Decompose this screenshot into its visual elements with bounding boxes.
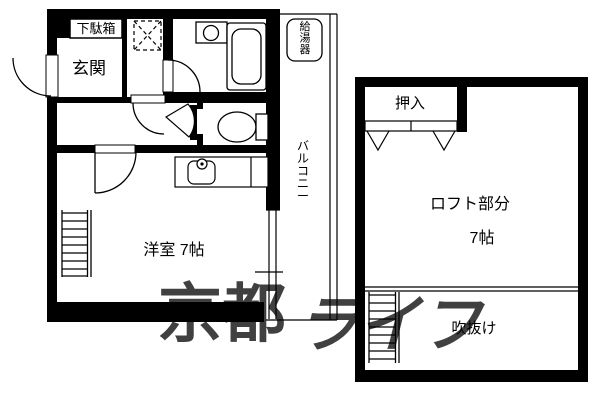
watermark-text-2: ライフ [293, 291, 496, 360]
wall-segment [47, 9, 280, 19]
floor-plan-canvas: 下駄箱 玄関 [0, 0, 600, 400]
wall-segment [47, 97, 131, 103]
wall-segment [578, 87, 588, 382]
loft-size-label: 7帖 [470, 229, 495, 247]
toilet-tank [256, 114, 268, 140]
closet-door-swing-marks [367, 131, 455, 150]
hallway-opening [131, 95, 165, 103]
washing-machine-box [134, 21, 161, 50]
loft-area-label: ロフト部分 [430, 195, 510, 213]
bath-door-leaf [163, 60, 173, 92]
wall-segment [197, 103, 203, 109]
wall-segment [355, 77, 588, 87]
water-heater-label: 給湯器 [300, 19, 311, 56]
balcony-label: バルコニー [297, 139, 309, 203]
entrance-door-leaf [46, 55, 58, 97]
loft-ladder-icon [62, 210, 91, 277]
washing-machine-cross [134, 21, 161, 50]
entrance-door-arc [13, 58, 51, 96]
closet-label: 押入 [395, 95, 425, 112]
kitchen-faucet-dot [201, 163, 203, 165]
wall-segment [135, 145, 280, 153]
main-room-label: 洋室 7帖 [143, 241, 204, 259]
floor-plan-page: 下駄箱 玄関 [0, 0, 600, 400]
wall-segment [57, 19, 70, 38]
room-door-opening [95, 145, 135, 153]
wall-segment [197, 134, 203, 145]
wall-segment [355, 370, 588, 382]
watermark-text-1: 京都 [158, 278, 286, 350]
watermark: 京都 ライフ [158, 278, 496, 360]
room-door-arc [95, 152, 136, 193]
wash-basin-icon [204, 26, 219, 41]
shoe-cabinet-label: 下駄箱 [76, 21, 115, 36]
wall-segment [47, 19, 57, 55]
wall-segment [47, 97, 57, 322]
wall-segment [457, 87, 467, 132]
wall-segment [163, 19, 173, 60]
closet-door-mark [433, 131, 455, 150]
washing-machine-space-icon [134, 21, 161, 50]
toilet-room [218, 112, 268, 142]
wall-segment [163, 92, 280, 103]
hallway-door-arc [133, 103, 164, 134]
washing-machine-cross [134, 21, 161, 50]
kitchen-counter [175, 157, 268, 187]
bathtub-inner [232, 29, 261, 84]
closet-door-mark [367, 131, 389, 150]
toilet-bowl-icon [218, 112, 256, 142]
entrance-label: 玄関 [72, 59, 106, 78]
closet-door-track [365, 121, 457, 131]
door-openings [46, 55, 173, 153]
bathroom [196, 22, 266, 90]
toilet-door-swing [166, 104, 194, 137]
first-floor-plan: 下駄箱 玄関 [13, 9, 337, 322]
wall-segment [47, 145, 95, 153]
